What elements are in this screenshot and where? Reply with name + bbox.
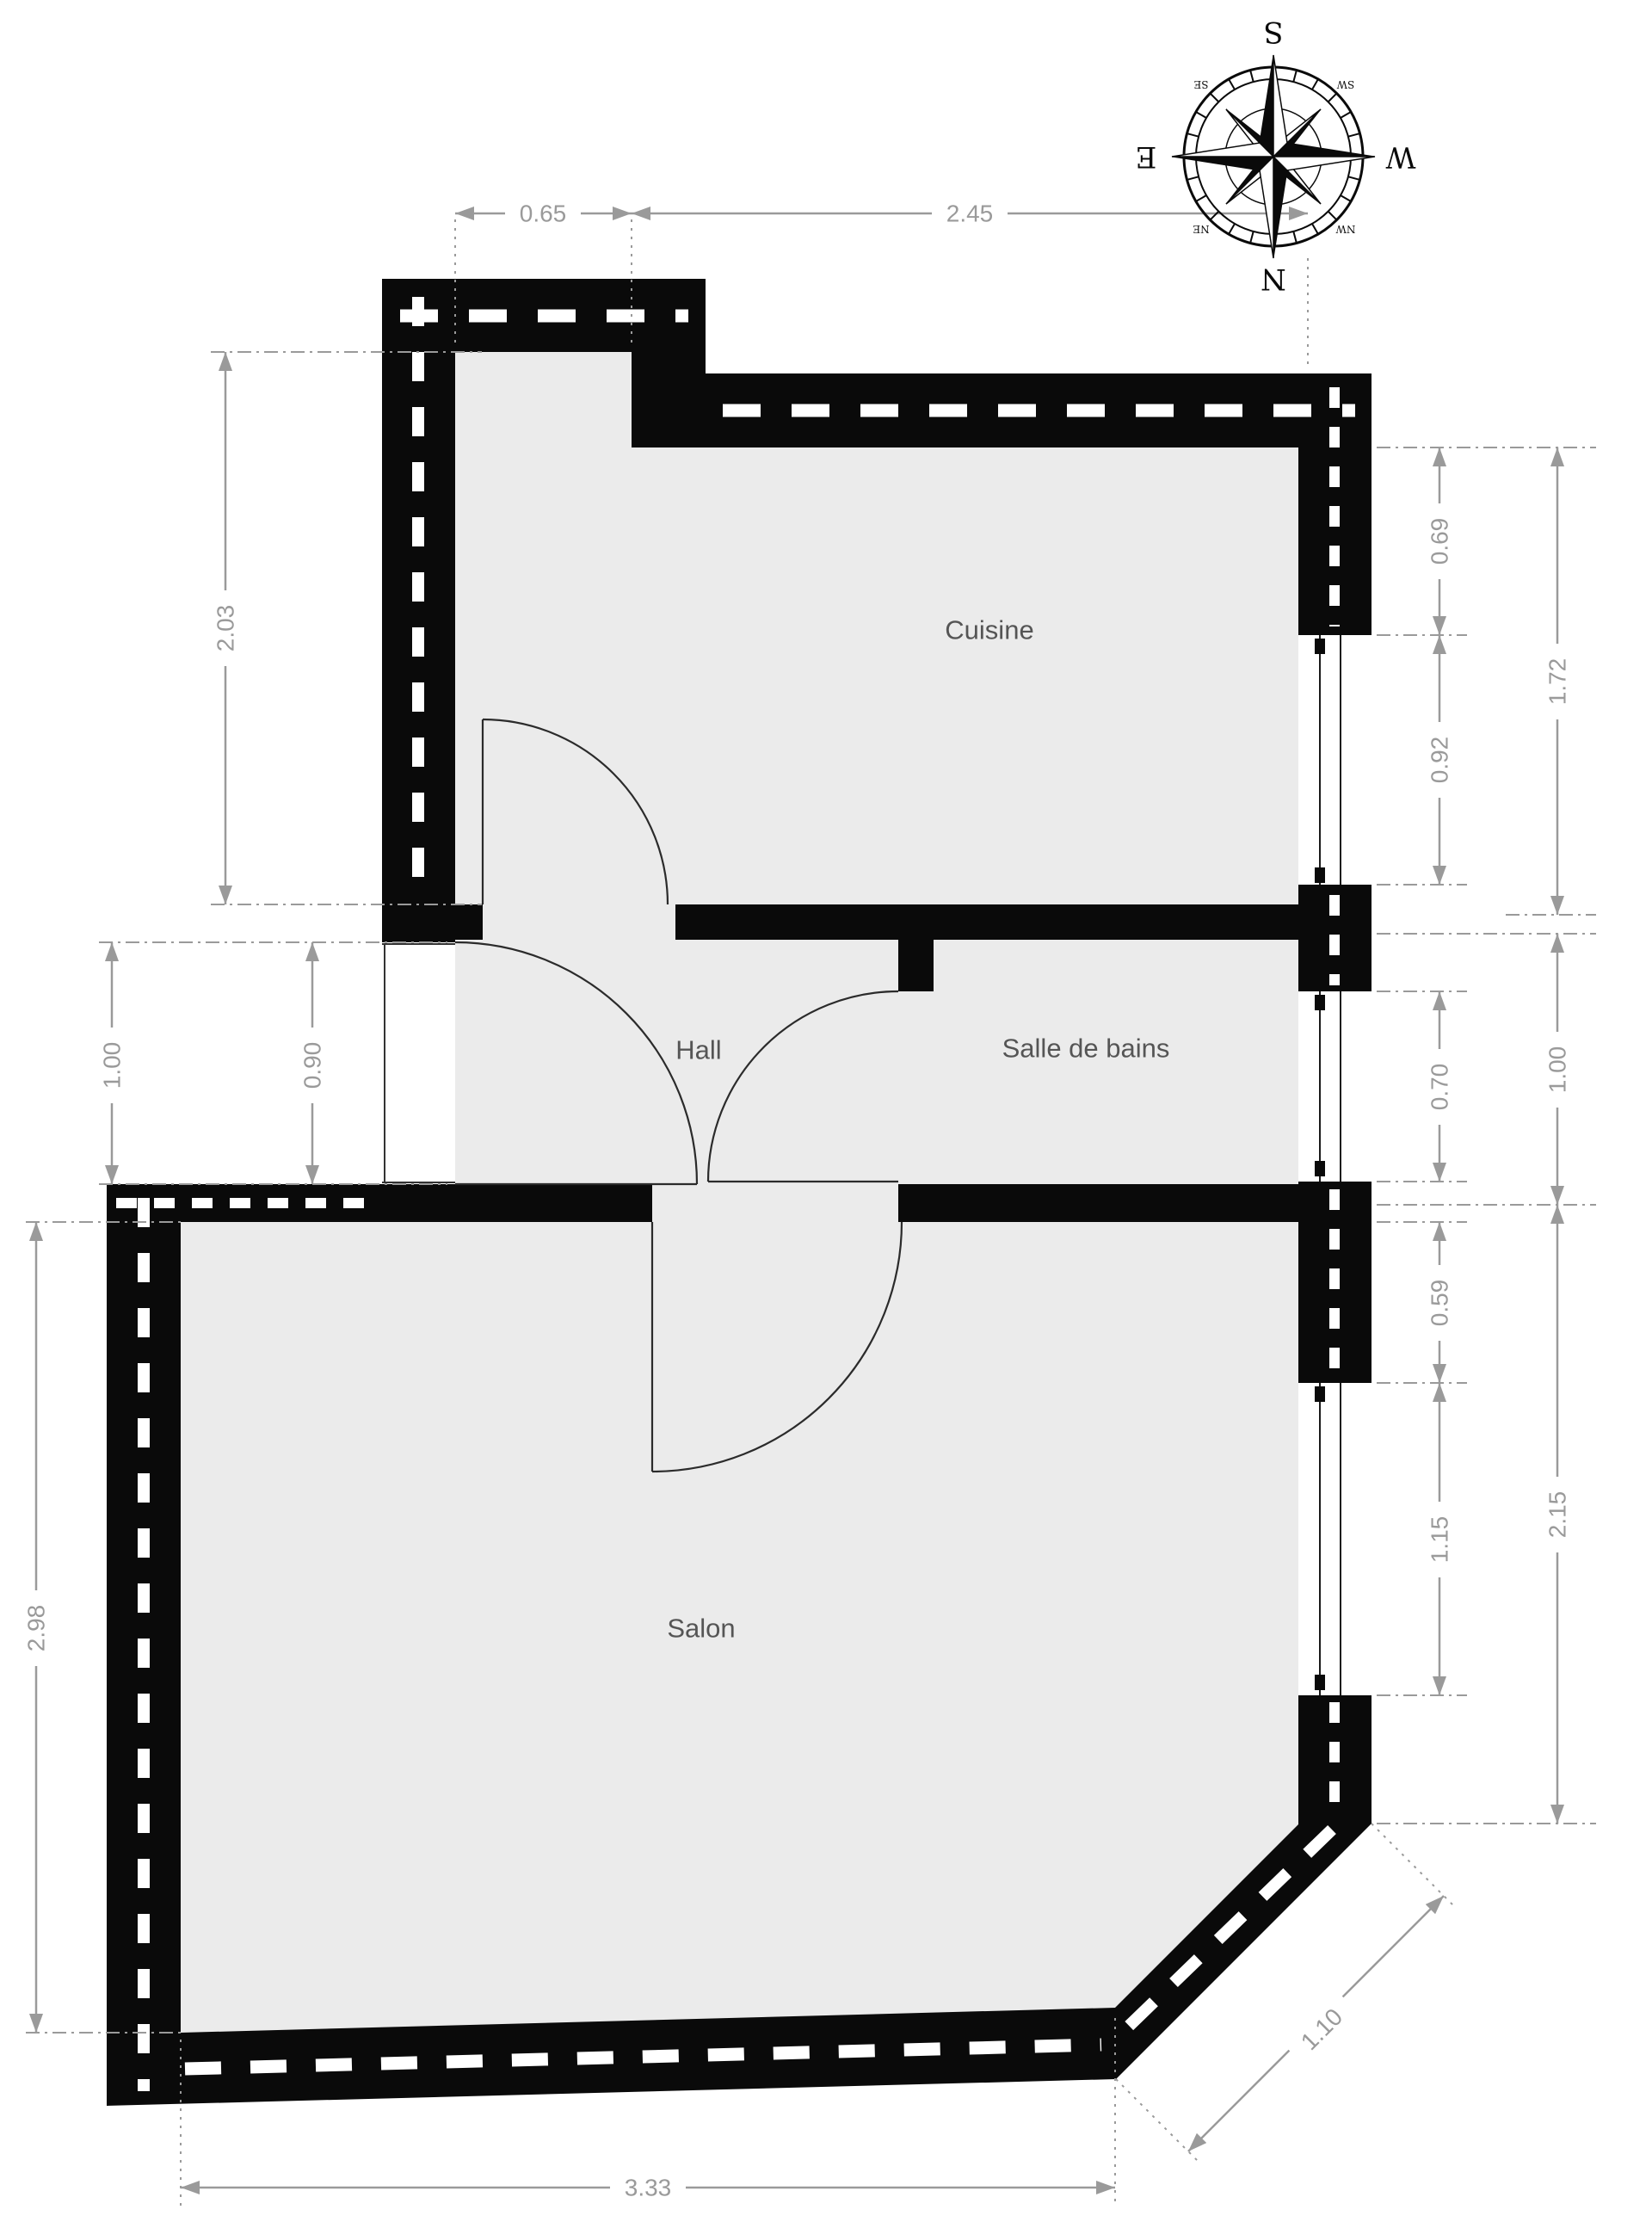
compass-southeast-label: SE <box>1194 78 1209 90</box>
cuisine-window <box>1298 635 1372 885</box>
room-label-cuisine: Cuisine <box>945 615 1033 645</box>
room-label-hall: Hall <box>675 1035 721 1065</box>
salon-door-opening <box>652 1184 898 1222</box>
dim-cuisine-right-total-label: 1.72 <box>1544 658 1571 706</box>
dim-cuisine-win-label: 0.92 <box>1427 737 1453 784</box>
room-salon-floor <box>181 1222 1298 2033</box>
floor-plan: 0.65 2.45 2.03 1.00 0.90 2.98 0.69 0.92 … <box>0 0 1652 2228</box>
room-label-salon: Salon <box>667 1614 735 1644</box>
dim-top-left-label: 0.65 <box>520 201 567 227</box>
cuisine-door-opening <box>483 904 675 940</box>
compass-west-label: W <box>1385 139 1415 174</box>
bathroom-door-opening <box>898 991 934 1184</box>
dim-cuisine-left-label: 2.03 <box>213 605 239 652</box>
dim-hall-left-outer-label: 1.00 <box>99 1042 126 1089</box>
dim-salon-right-total-label: 2.15 <box>1544 1491 1571 1539</box>
windows <box>1298 635 1372 1695</box>
compass-south-label: S <box>1263 15 1283 49</box>
salon-window <box>1298 1383 1372 1695</box>
compass-southwest-label: SW <box>1336 78 1354 90</box>
dim-hall-left-inner-label: 0.90 <box>299 1042 326 1089</box>
compass-northwest-label: NW <box>1335 223 1356 235</box>
dim-bath-right-total-label: 1.00 <box>1544 1046 1571 1094</box>
dim-salon-win-upper-label: 0.59 <box>1427 1280 1453 1327</box>
dim-salon-win-label: 1.15 <box>1427 1516 1453 1564</box>
dim-salon-bottom-label: 3.33 <box>625 2175 672 2201</box>
dim-bath-win-label: 0.70 <box>1427 1064 1453 1111</box>
dim-salon-left-label: 2.98 <box>23 1605 50 1652</box>
compass-east-label: E <box>1136 139 1157 174</box>
compass-north-label: N <box>1261 262 1286 296</box>
dim-cuisine-win-upper-label: 0.69 <box>1427 518 1453 565</box>
dim-top-right-label: 2.45 <box>946 201 994 227</box>
bathroom-window <box>1298 991 1372 1182</box>
room-label-bathroom: Salle de bains <box>1002 1034 1170 1064</box>
compass-northeast-label: NE <box>1193 223 1209 235</box>
entrance-door-opening <box>382 942 455 1184</box>
